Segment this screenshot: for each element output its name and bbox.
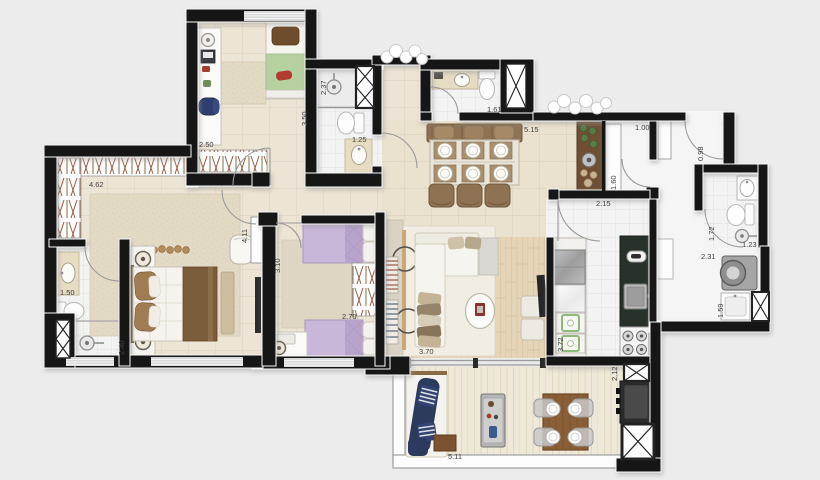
svg-text:3.72: 3.72 bbox=[556, 337, 565, 352]
svg-text:1.25: 1.25 bbox=[352, 135, 367, 144]
svg-text:3.50: 3.50 bbox=[300, 111, 309, 126]
svg-text:2.12: 2.12 bbox=[610, 366, 619, 381]
svg-text:5.15: 5.15 bbox=[524, 125, 539, 134]
svg-text:1.72: 1.72 bbox=[707, 226, 716, 241]
svg-text:3.10: 3.10 bbox=[273, 258, 282, 273]
svg-text:1.50: 1.50 bbox=[60, 288, 75, 297]
svg-text:2.40: 2.40 bbox=[117, 340, 126, 355]
svg-text:1.61: 1.61 bbox=[487, 105, 502, 114]
svg-text:5.11: 5.11 bbox=[448, 452, 462, 461]
svg-text:2.31: 2.31 bbox=[701, 252, 716, 261]
svg-text:1.59: 1.59 bbox=[716, 303, 725, 318]
svg-text:2.70: 2.70 bbox=[342, 312, 357, 321]
svg-text:0.98: 0.98 bbox=[696, 146, 705, 161]
svg-text:2.15: 2.15 bbox=[596, 199, 611, 208]
svg-text:2.37: 2.37 bbox=[319, 80, 328, 95]
svg-text:1.60: 1.60 bbox=[609, 175, 618, 190]
svg-text:2.50: 2.50 bbox=[199, 140, 214, 149]
svg-text:1.00: 1.00 bbox=[635, 123, 650, 132]
svg-text:4.11: 4.11 bbox=[240, 229, 249, 243]
svg-text:1.23: 1.23 bbox=[742, 240, 757, 249]
svg-text:3.70: 3.70 bbox=[419, 347, 434, 356]
svg-text:4.62: 4.62 bbox=[89, 180, 104, 189]
